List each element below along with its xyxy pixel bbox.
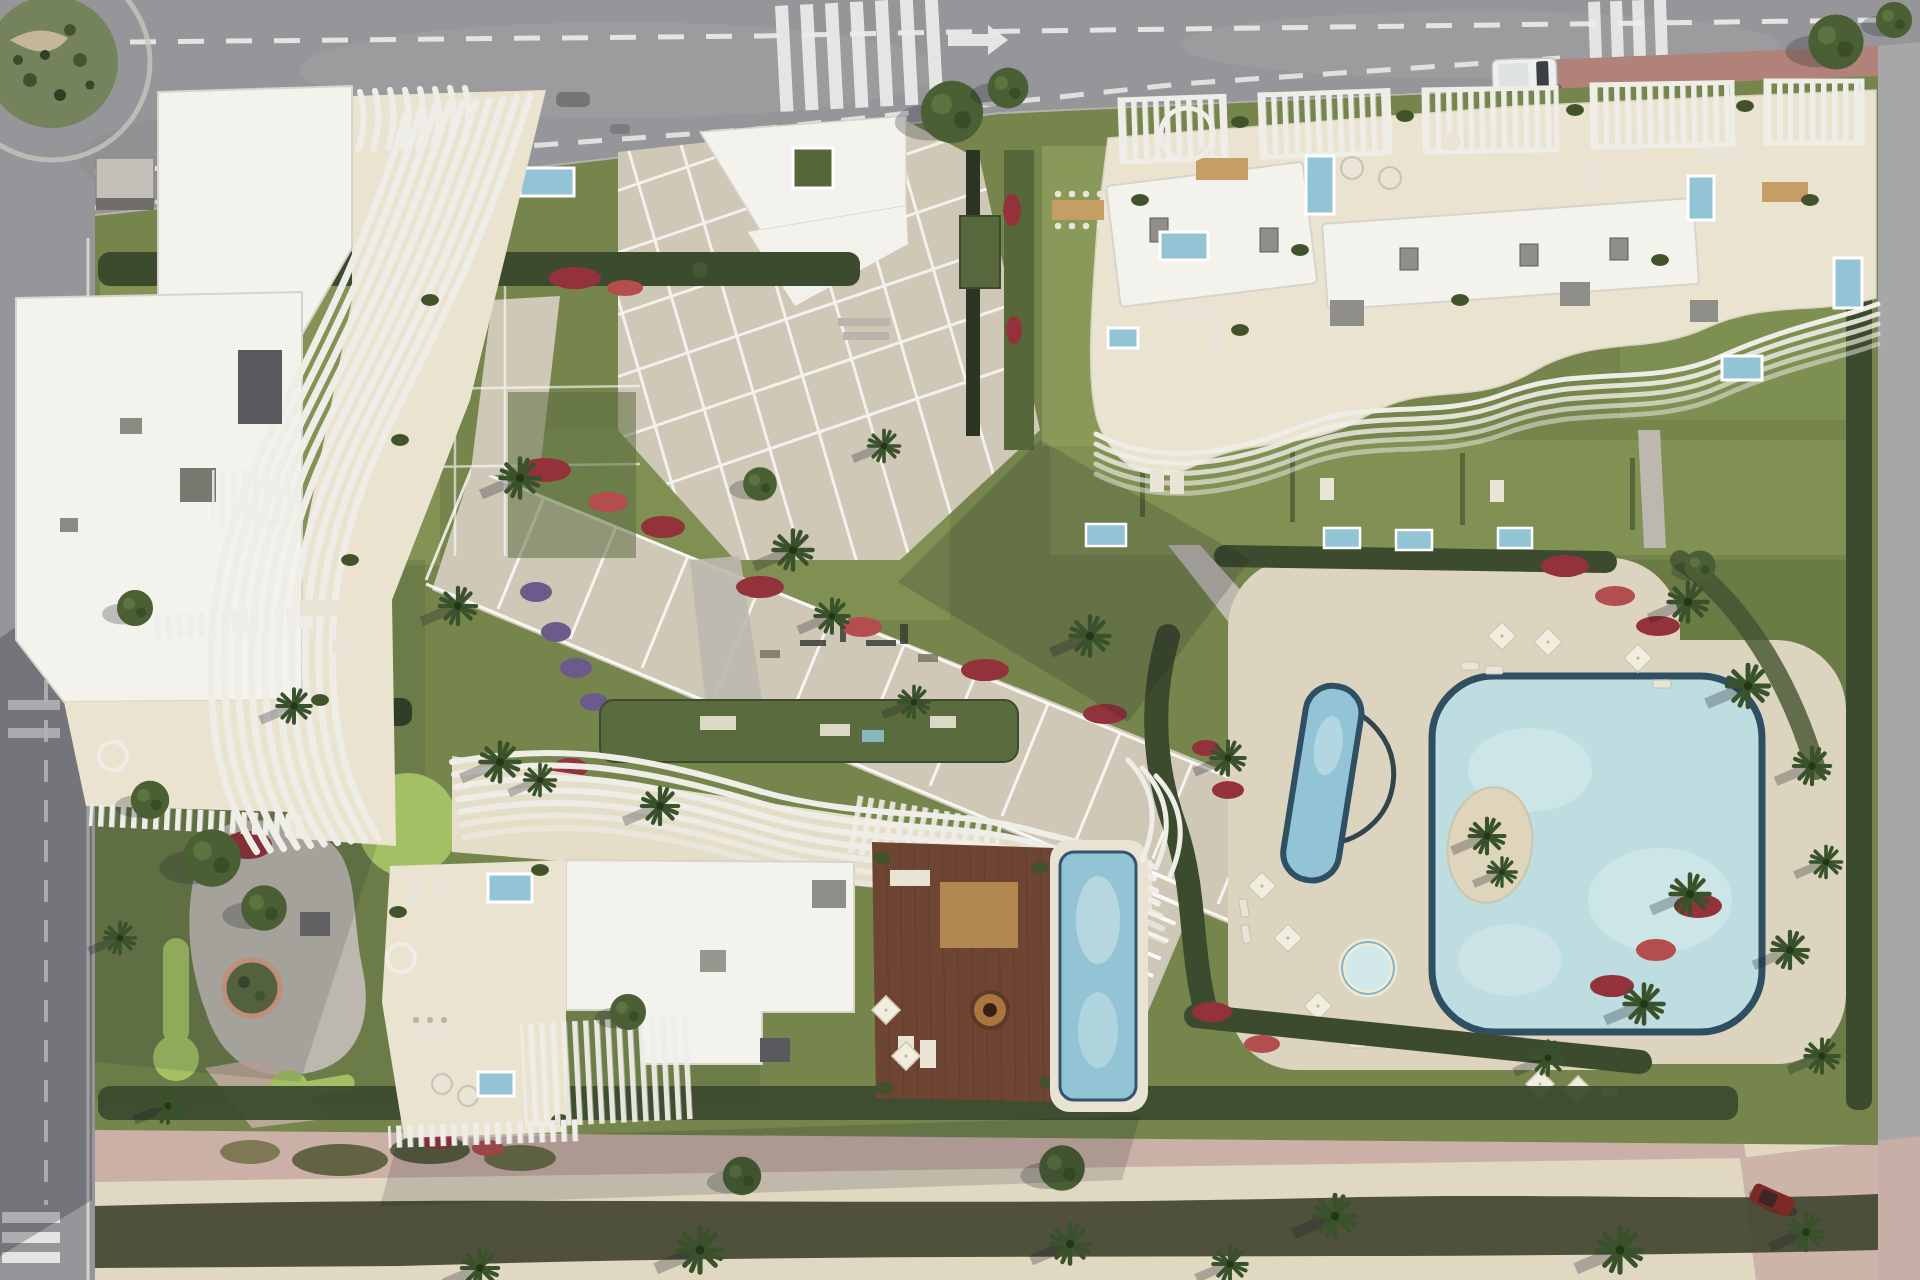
- rooftop-timber-deck: [872, 842, 1060, 1102]
- canopy-planter: [793, 148, 833, 188]
- aerial-render-canvas: [0, 0, 1920, 1280]
- site-plan-svg: [0, 0, 1920, 1280]
- dark-hedge-wall: [966, 150, 980, 436]
- east-boundary-hedge: [1846, 240, 1872, 1110]
- right-road: [1878, 42, 1920, 1280]
- rooftop-infinity-pool: [1050, 840, 1148, 1112]
- deck-dining-pergola: [940, 882, 1018, 948]
- garden-pavilion-west: [960, 216, 1000, 288]
- green-roof-pavilion: [600, 700, 1018, 762]
- garden-pool-small: [520, 168, 574, 196]
